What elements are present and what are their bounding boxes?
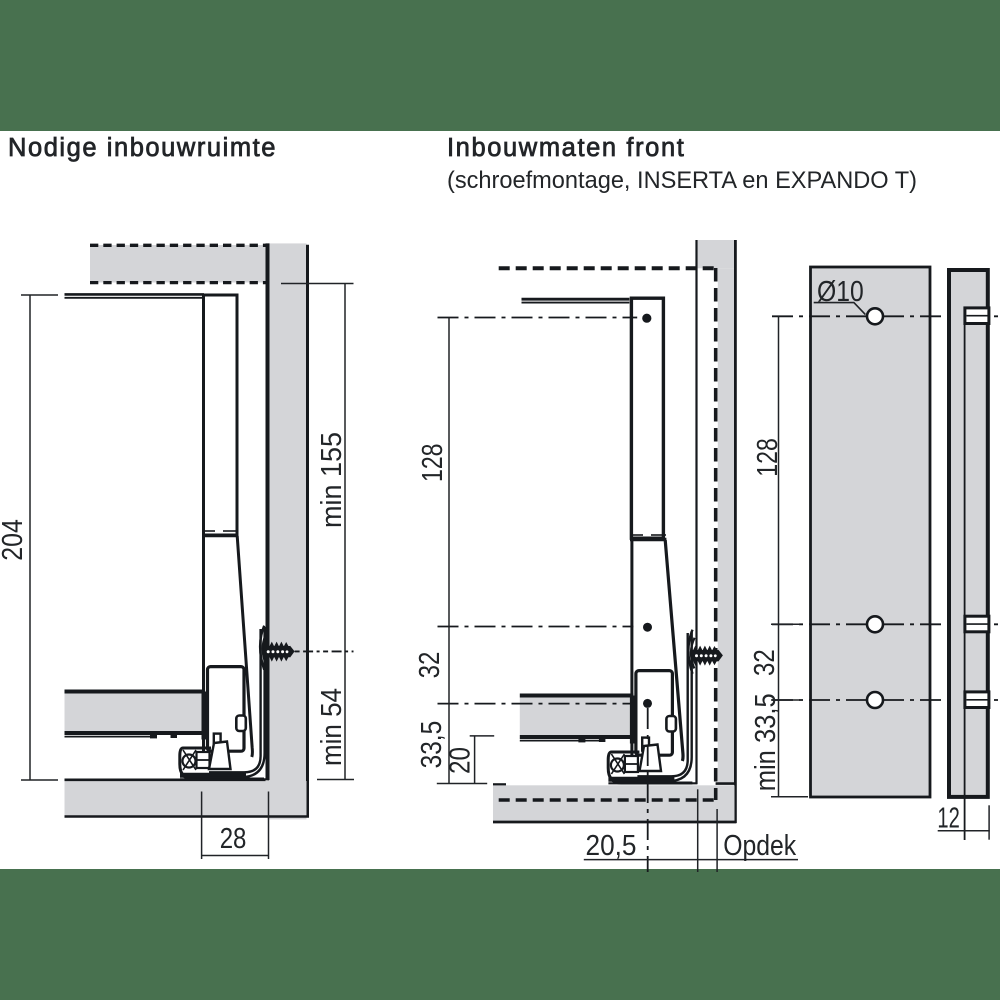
svg-text:min 155: min 155 [316,432,348,528]
svg-text:32: 32 [749,649,781,676]
svg-text:128: 128 [417,444,449,483]
svg-text:min 33,5: min 33,5 [750,693,782,791]
svg-text:128: 128 [752,438,784,477]
svg-text:12: 12 [937,802,959,834]
svg-text:32: 32 [414,652,446,679]
svg-text:Opdek: Opdek [723,830,797,862]
svg-text:20,5: 20,5 [586,830,637,862]
svg-text:Nodige inbouwruimte: Nodige inbouwruimte [8,134,277,162]
svg-text:min 54: min 54 [316,688,348,766]
svg-text:20: 20 [445,747,477,774]
svg-text:28: 28 [220,823,247,855]
svg-text:33,5: 33,5 [416,721,448,769]
svg-text:Inbouwmaten front: Inbouwmaten front [447,134,685,162]
svg-text:(schroefmontage, INSERTA en EX: (schroefmontage, INSERTA en EXPANDO T) [447,168,917,194]
svg-text:204: 204 [0,519,29,561]
